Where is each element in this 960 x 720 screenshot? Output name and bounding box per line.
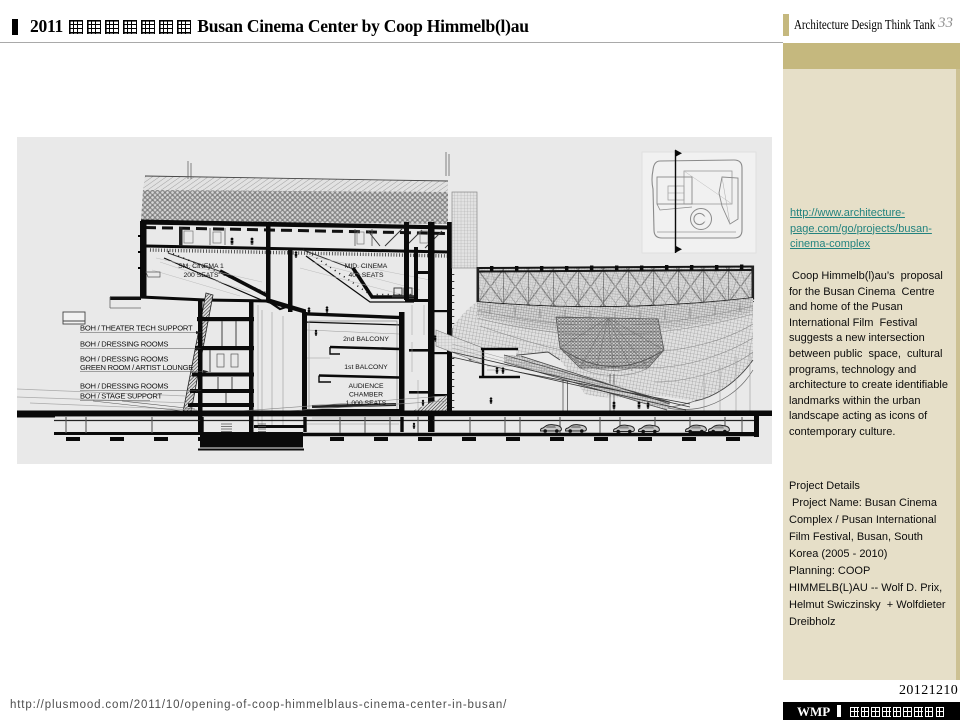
svg-text:GREEN ROOM / ARTIST LOUNGE: GREEN ROOM / ARTIST LOUNGE (80, 363, 193, 372)
svg-text:AUDIENCE: AUDIENCE (348, 383, 384, 390)
svg-text:BOH / DRESSING ROOMS: BOH / DRESSING ROOMS (80, 340, 168, 349)
svg-text:BOH / THEATER TECH SUPPORT: BOH / THEATER TECH SUPPORT (80, 324, 193, 333)
svg-text:MID. CINEMA: MID. CINEMA (345, 263, 388, 270)
svg-text:CHAMBER: CHAMBER (349, 392, 383, 399)
svg-text:2nd BALCONY: 2nd BALCONY (343, 336, 389, 343)
svg-text:BOH / STAGE SUPPORT: BOH / STAGE SUPPORT (80, 392, 163, 401)
svg-text:1.000 SEATS: 1.000 SEATS (346, 400, 387, 407)
svg-text:BOH / DRESSING ROOMS: BOH / DRESSING ROOMS (80, 382, 168, 391)
svg-text:200 SEATS: 200 SEATS (183, 272, 218, 279)
svg-text:SM. CINEMA 1: SM. CINEMA 1 (178, 263, 224, 270)
svg-text:1st BALCONY: 1st BALCONY (344, 364, 388, 371)
svg-text:400 SEATS: 400 SEATS (348, 272, 383, 279)
